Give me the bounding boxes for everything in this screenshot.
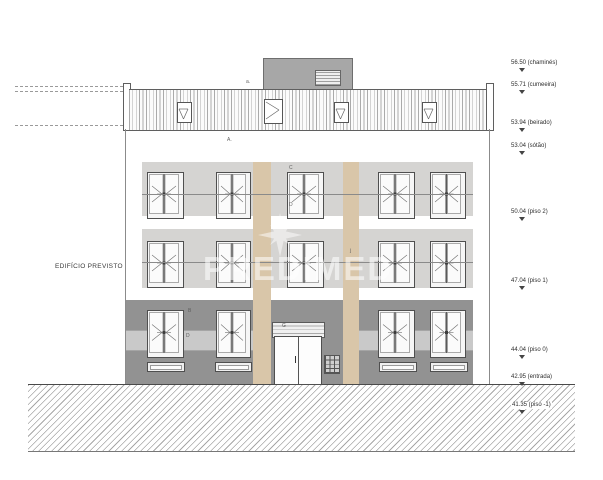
annotation-entrance-g: G — [282, 324, 286, 329]
basement-vent — [430, 362, 468, 372]
level-piso-minus1: 41.35 (piso -1) — [511, 402, 552, 414]
basement-vent-inner — [218, 365, 249, 370]
railing-piso1 — [142, 262, 473, 263]
door-leaf-divider — [298, 337, 299, 384]
level-sotao: 53.04 (sótão) — [511, 143, 546, 155]
level-piso0: 44.04 (piso 0) — [511, 347, 548, 359]
level-piso1: 47.04 (piso 1) — [511, 278, 548, 290]
facade-window — [378, 241, 415, 288]
ground-hatch — [28, 384, 575, 452]
level-marker-icon — [519, 151, 525, 155]
level-cumeeira: 55.71 (cumeeira) — [511, 82, 556, 94]
basement-vent-inner — [382, 365, 414, 370]
level-marker-icon — [519, 410, 525, 414]
annotation-floor1: j — [350, 249, 351, 254]
basement-vent — [215, 362, 252, 372]
door-handle — [295, 356, 296, 363]
annotation-window-d: D — [289, 203, 293, 208]
facade-window — [147, 241, 184, 288]
roof-vent — [334, 102, 349, 123]
entrance-door — [274, 336, 322, 385]
annotation-ground-b: B — [188, 309, 191, 314]
basement-vent-inner — [433, 365, 465, 370]
level-entrada: 42.95 (entrada) — [511, 374, 552, 386]
elevation-drawing: EDIFÍCIO PREVISTO 56.50 (chaminés) 55.71… — [0, 0, 603, 480]
annotation-window-c: C — [289, 166, 293, 171]
annotation-roof: a. — [246, 80, 250, 85]
basement-vent — [379, 362, 417, 372]
facade-window — [147, 172, 184, 219]
level-marker-icon — [519, 286, 525, 290]
facade-window — [216, 310, 251, 358]
facade-window — [216, 241, 251, 288]
level-marker-icon — [519, 355, 525, 359]
level-chamines: 56.50 (chaminés) — [511, 60, 557, 72]
railing-piso2 — [142, 194, 473, 195]
facade-window — [216, 172, 251, 219]
level-marker-icon — [519, 68, 525, 72]
facade-window — [430, 172, 466, 219]
basement-vent — [147, 362, 185, 372]
facade-window — [430, 241, 466, 288]
facade-window — [147, 310, 184, 358]
building-title-label: EDIFÍCIO PREVISTO — [55, 263, 123, 270]
basement-vent-inner — [150, 365, 182, 370]
level-piso2: 50.04 (piso 2) — [511, 209, 548, 221]
facade-window — [287, 241, 324, 288]
annotation-ground-d: D — [186, 334, 190, 339]
facade-window — [287, 172, 324, 219]
facade-window — [378, 172, 415, 219]
facade-window — [378, 310, 415, 358]
facade-window — [430, 310, 466, 358]
level-marker-icon — [519, 217, 525, 221]
intercom-panel — [324, 355, 340, 374]
level-marker-icon — [519, 382, 525, 386]
level-marker-icon — [519, 90, 525, 94]
skylight-window — [264, 99, 283, 124]
level-beirado: 53.94 (beirado) — [511, 120, 552, 132]
level-marker-icon — [519, 128, 525, 132]
roof-vent — [422, 102, 437, 123]
annotation-attic: A. — [227, 138, 232, 143]
roof-vent — [177, 102, 192, 123]
